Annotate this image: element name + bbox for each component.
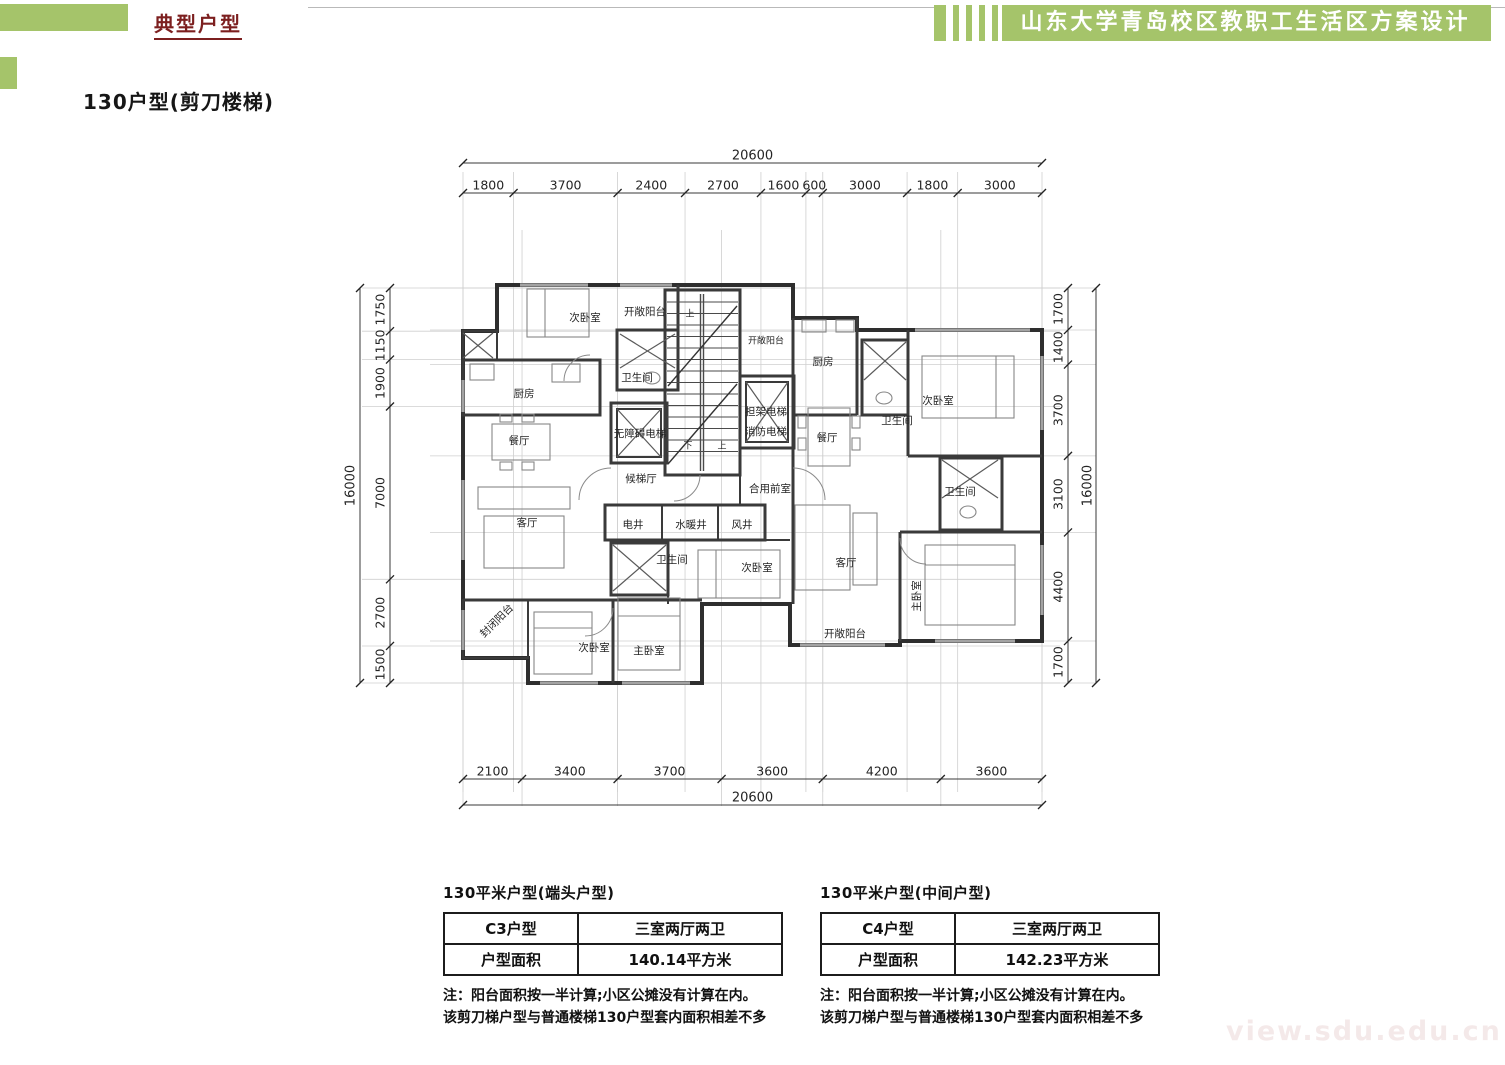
note-line-1: 注：阳台面积按一半计算;小区公摊没有计算在内。 xyxy=(443,986,789,1008)
left-edge-accent-chip xyxy=(0,57,17,89)
room-label: 卫生间 xyxy=(944,485,976,498)
note-line-1: 注：阳台面积按一半计算;小区公摊没有计算在内。 xyxy=(820,986,1166,1008)
dim-label: 3700 xyxy=(1051,394,1066,426)
room-label: 电井 xyxy=(623,518,644,531)
dim-label: 1700 xyxy=(1051,293,1066,325)
dim-label: 1600 xyxy=(768,178,800,193)
furniture xyxy=(470,289,1015,674)
dim-label: 3600 xyxy=(976,764,1008,779)
unit-layout: 三室两厅两卫 xyxy=(578,913,782,944)
spec-table-c4: C4户型 三室两厅两卫 户型面积 142.23平方米 xyxy=(820,912,1160,976)
dim-label: 7000 xyxy=(373,477,388,509)
room-label: 主卧室 xyxy=(910,580,923,612)
header-accent-block xyxy=(0,4,128,31)
unit-code: C3户型 xyxy=(444,913,578,944)
area-label: 户型面积 xyxy=(444,944,578,975)
dim-label: 1400 xyxy=(1051,331,1066,363)
note-line-2: 该剪刀梯户型与普通楼梯130户型套内面积相差不多 xyxy=(443,1008,789,1030)
unit-card-c4: 130平米户型(中间户型) C4户型 三室两厅两卫 户型面积 142.23平方米… xyxy=(820,882,1166,1029)
unit-code: C4户型 xyxy=(821,913,955,944)
room-label: 厨房 xyxy=(813,355,834,368)
dim-label: 3400 xyxy=(554,764,586,779)
room-label: 候梯厅 xyxy=(625,472,657,485)
dim-label: 4400 xyxy=(1051,571,1066,603)
dim-label: 3100 xyxy=(1051,478,1066,510)
room-label: 次卧室 xyxy=(569,311,601,324)
floor-plan-drawing: 2060018003700240027001600600300018003000… xyxy=(330,140,1110,820)
structural-grid xyxy=(362,172,1096,806)
area-value: 140.14平方米 xyxy=(578,944,782,975)
dim-label: 1500 xyxy=(373,649,388,681)
dim-label: 1900 xyxy=(373,367,388,399)
room-label: 客厅 xyxy=(836,556,857,569)
dim-total-label: 16000 xyxy=(344,465,359,506)
room-label: 风井 xyxy=(732,518,753,531)
unit-layout: 三室两厅两卫 xyxy=(955,913,1159,944)
room-label: 卫生间 xyxy=(656,553,688,566)
watermark: view.sdu.edu.cn xyxy=(1226,1016,1502,1047)
dim-label: 2400 xyxy=(635,178,667,193)
card-heading: 130平米户型(中间户型) xyxy=(820,882,1166,903)
table-row: C3户型 三室两厅两卫 xyxy=(444,913,782,944)
room-label: 主卧室 xyxy=(633,644,665,657)
room-label: 开敞阳台 xyxy=(624,305,666,318)
table-row: C4户型 三室两厅两卫 xyxy=(821,913,1159,944)
room-label: 开敞阳台 xyxy=(748,335,784,347)
room-label: 次卧室 xyxy=(741,561,773,574)
room-label: 上 xyxy=(685,309,694,320)
room-label: 合用前室 xyxy=(749,482,791,495)
dim-label: 3700 xyxy=(654,764,686,779)
project-banner: 山东大学青岛校区教职工生活区方案设计 xyxy=(934,5,1491,41)
area-value: 142.23平方米 xyxy=(955,944,1159,975)
room-label: 消防电梯 xyxy=(745,425,787,438)
dim-label: 1750 xyxy=(373,294,388,326)
unit-card-c3: 130平米户型(端头户型) C3户型 三室两厅两卫 户型面积 140.14平方米… xyxy=(443,882,789,1029)
table-row: 户型面积 140.14平方米 xyxy=(444,944,782,975)
room-label: 客厅 xyxy=(517,516,538,529)
table-row: 户型面积 142.23平方米 xyxy=(821,944,1159,975)
room-label: 下 xyxy=(683,442,692,452)
room-label: 餐厅 xyxy=(509,434,530,447)
dim-label: 2100 xyxy=(477,764,509,779)
dim-total-label: 20600 xyxy=(732,791,773,806)
room-label: 开敞阳台 xyxy=(824,627,866,640)
room-label: 水暖井 xyxy=(675,518,707,531)
room-label: 上 xyxy=(717,441,726,452)
dim-label: 1800 xyxy=(916,178,948,193)
room-label: 厨房 xyxy=(514,387,535,400)
room-label: 次卧室 xyxy=(922,394,954,407)
note-line-2: 该剪刀梯户型与普通楼梯130户型套内面积相差不多 xyxy=(820,1008,1166,1030)
dim-label: 3600 xyxy=(756,764,788,779)
room-label: 担架电梯 xyxy=(745,405,787,418)
room-label: 无障碍电梯 xyxy=(614,427,667,440)
dim-total-label: 20600 xyxy=(732,149,773,164)
dim-label: 2700 xyxy=(707,178,739,193)
room-label: 餐厅 xyxy=(817,431,838,444)
dim-label: 1800 xyxy=(472,178,504,193)
card-note: 注：阳台面积按一半计算;小区公摊没有计算在内。 该剪刀梯户型与普通楼梯130户型… xyxy=(820,986,1166,1029)
card-heading: 130平米户型(端头户型) xyxy=(443,882,789,903)
dim-label: 3000 xyxy=(849,178,881,193)
room-label: 卫生间 xyxy=(881,414,913,427)
area-label: 户型面积 xyxy=(821,944,955,975)
banner-stripes-decor xyxy=(940,5,1002,41)
section-label: 典型户型 xyxy=(154,8,242,40)
room-label: 封闭阳台 xyxy=(477,601,516,640)
dim-label: 2700 xyxy=(373,597,388,629)
room-label: 卫生间 xyxy=(621,371,653,384)
dim-label: 3000 xyxy=(984,178,1016,193)
dim-label: 3700 xyxy=(550,178,582,193)
dim-total-label: 16000 xyxy=(1081,465,1096,506)
dim-label: 1700 xyxy=(1051,646,1066,678)
card-note: 注：阳台面积按一半计算;小区公摊没有计算在内。 该剪刀梯户型与普通楼梯130户型… xyxy=(443,986,789,1029)
dim-label: 600 xyxy=(802,178,826,193)
dim-label: 4200 xyxy=(866,764,898,779)
dim-label: 1150 xyxy=(373,329,388,361)
room-label: 次卧室 xyxy=(578,641,610,654)
project-title: 山东大学青岛校区教职工生活区方案设计 xyxy=(1006,5,1485,41)
page-title: 130户型(剪刀楼梯) xyxy=(83,86,274,115)
sheet: 典型户型 山东大学青岛校区教职工生活区方案设计 130户型(剪刀楼梯) xyxy=(0,0,1505,1065)
spec-table-c3: C3户型 三室两厅两卫 户型面积 140.14平方米 xyxy=(443,912,783,976)
